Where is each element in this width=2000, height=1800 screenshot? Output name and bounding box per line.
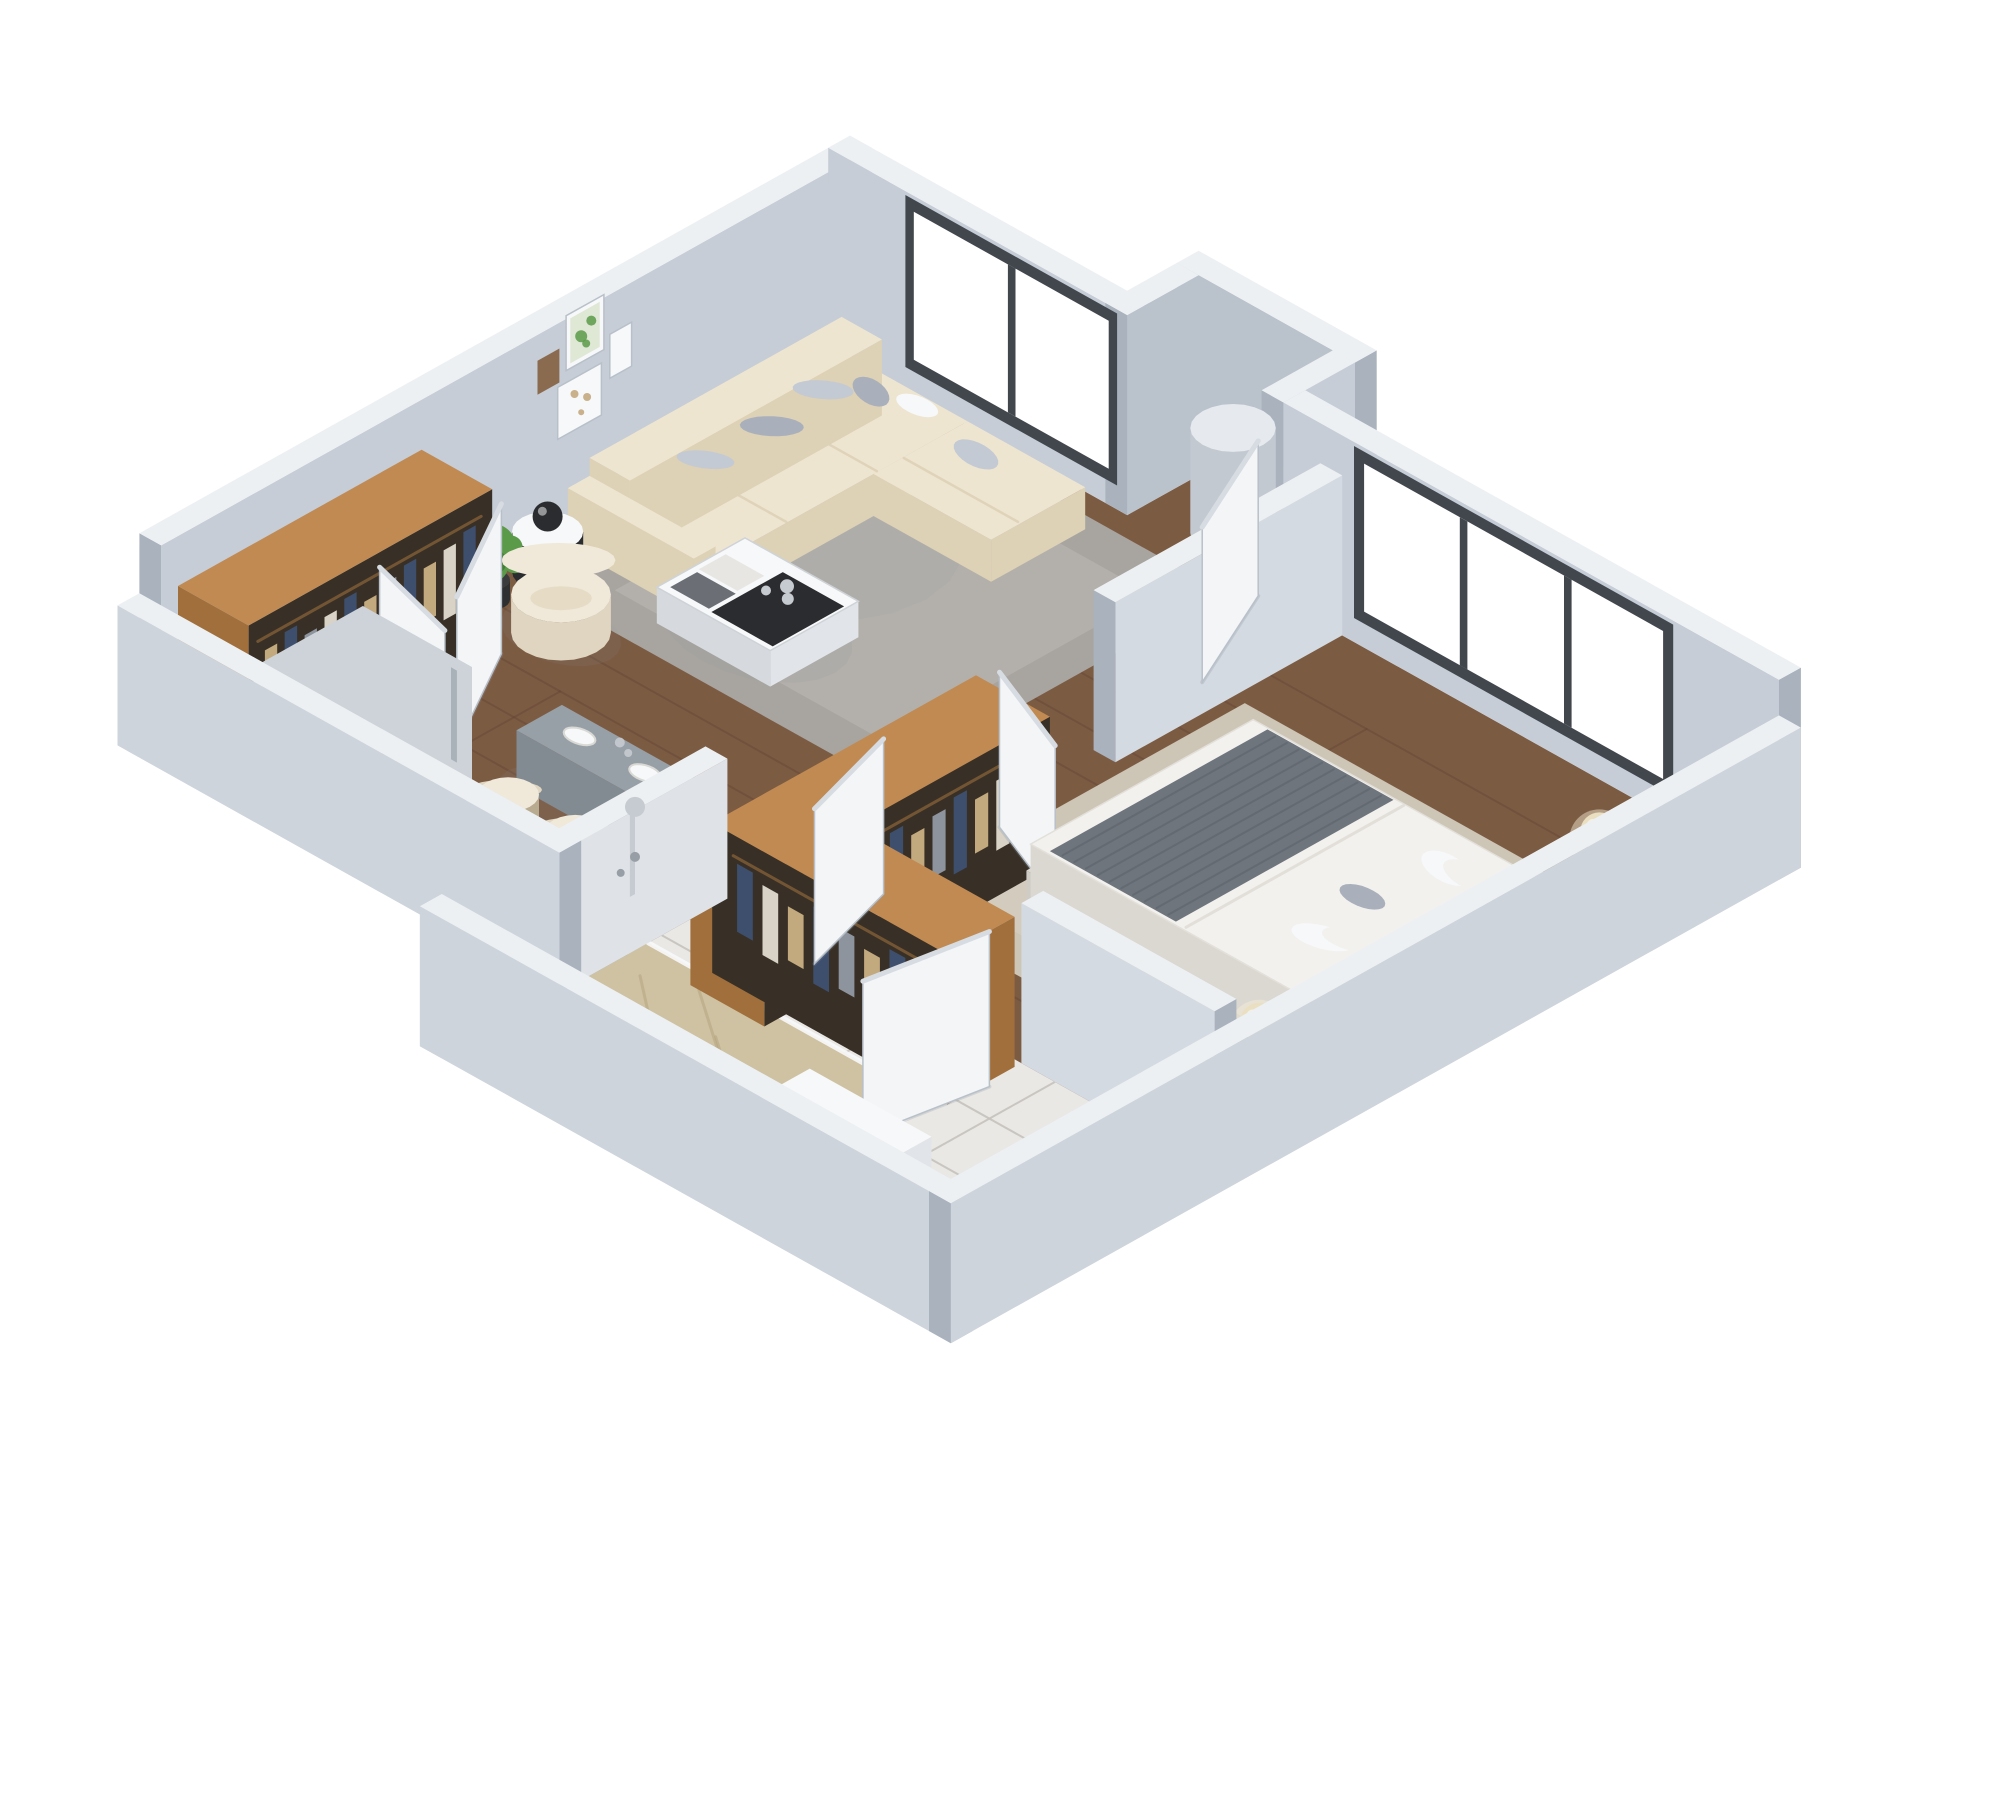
floorplan-svg bbox=[0, 0, 2000, 1800]
shower-head bbox=[625, 797, 645, 817]
armchair-cushion bbox=[530, 586, 592, 610]
floorplan-stage bbox=[0, 0, 2000, 1800]
side-table-sphere-decor bbox=[533, 502, 563, 532]
shower-riser bbox=[630, 806, 635, 897]
entry-niche-left-wall bbox=[1105, 263, 1198, 515]
armchair-seat bbox=[511, 567, 611, 661]
bedroom-window-mullion-1 bbox=[1460, 517, 1468, 669]
coffee-table-decor-dark bbox=[756, 607, 776, 627]
fridge-handle bbox=[451, 667, 457, 762]
living-window-mullion bbox=[1008, 264, 1016, 416]
bedroom-window-mullion-2 bbox=[1564, 576, 1572, 728]
